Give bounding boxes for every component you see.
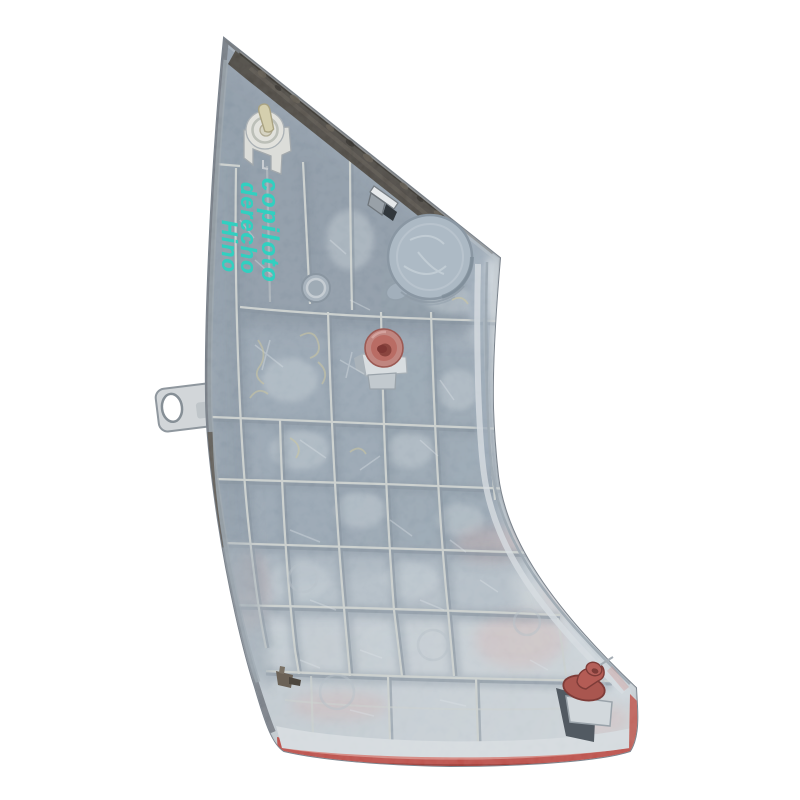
svg-text:Hino: Hino [217,220,242,273]
